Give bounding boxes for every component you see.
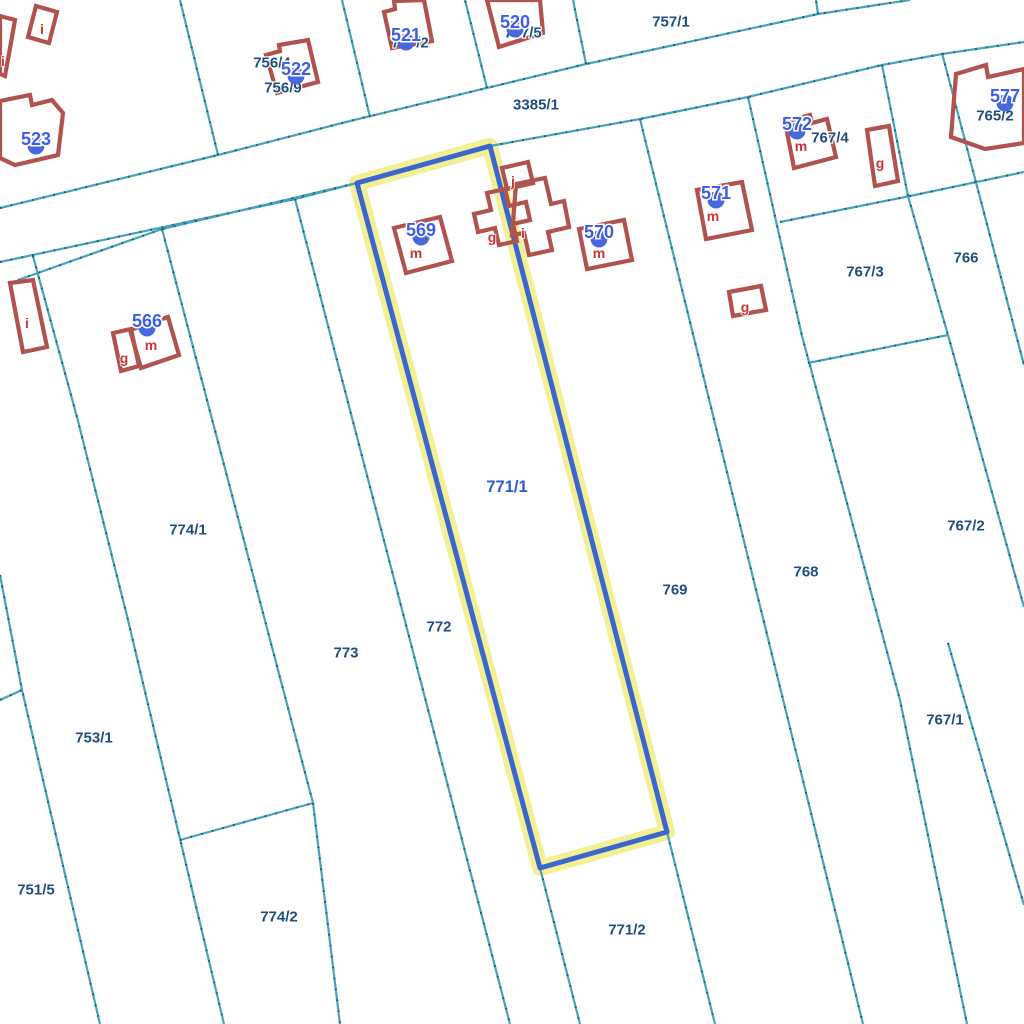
- parcel-label: 768: [793, 564, 818, 581]
- house-number-label: 566: [132, 311, 162, 331]
- building-letter: g: [876, 155, 885, 171]
- parcel-label: 757/1: [652, 14, 690, 31]
- parcel-label: 773: [333, 645, 358, 662]
- house-number-label: 572: [782, 114, 812, 134]
- boundary-line-upper-bound-1: [180, 0, 218, 155]
- boundary-line-strip-768-767: [748, 97, 967, 1024]
- parcel-label: 771/2: [608, 922, 646, 939]
- cadastral-map-canvas[interactable]: iiigmmgijmmgmg756/9756/4757/2757/5757/13…: [0, 0, 1024, 1024]
- building-letter: i: [521, 225, 525, 241]
- parcel-label: 751/5: [17, 882, 55, 899]
- boundary-speckle-road-top-edge: [0, 0, 910, 208]
- building-letter: m: [145, 337, 157, 353]
- parcel-label: 767/4: [811, 130, 849, 147]
- building-letter: g: [488, 229, 497, 245]
- house-number-label: 523: [21, 129, 51, 149]
- parcel-label: 767/1: [926, 712, 964, 729]
- boundary-line-upper-bound-2: [342, 0, 370, 117]
- building-letter: m: [707, 208, 719, 224]
- building-letter: j: [510, 173, 515, 189]
- selected-parcel-label: 771/1: [486, 478, 527, 496]
- boundary-line-cross-7674-7673: [780, 172, 1024, 222]
- house-number-label: 520: [500, 12, 530, 32]
- boundary-line-cross-774-1-774-2: [180, 803, 313, 840]
- building-letter: m: [410, 245, 422, 261]
- parcel-label: 772: [426, 619, 451, 636]
- cadastral-map-stage: iiigmmgijmmgmg756/9756/4757/2757/5757/13…: [0, 0, 1024, 1024]
- building-letter: i: [1, 53, 5, 69]
- boundary-line-strip-753-774: [33, 256, 224, 1024]
- parcel-label: 774/1: [169, 522, 207, 539]
- house-number-label: 522: [281, 59, 311, 79]
- building-letter: g: [120, 350, 129, 366]
- house-number-label: 569: [406, 220, 436, 240]
- parcel-label: 753/1: [75, 730, 113, 747]
- house-number-label: 570: [584, 222, 614, 242]
- building-letter: i: [25, 315, 29, 331]
- house-number-label: 571: [701, 183, 731, 203]
- boundary-line-strip-772-7712: [540, 868, 580, 1024]
- building-letter: i: [40, 21, 44, 37]
- parcel-label: 3385/1: [513, 97, 559, 114]
- building-letter: g: [741, 299, 750, 315]
- boundary-line-road-top-edge: [0, 0, 910, 208]
- parcel-label: 774/2: [260, 909, 298, 926]
- parcel-label: 769: [662, 582, 687, 599]
- house-number-label: 521: [391, 25, 421, 45]
- parcel-label: 767/2: [947, 518, 985, 535]
- boundary-speckle-strip-768-767: [748, 97, 967, 1024]
- boundary-line-strip-751-753: [0, 575, 100, 1024]
- building-letter: m: [795, 138, 807, 154]
- boundary-speckle-strip-753-774: [33, 256, 224, 1024]
- house-number-label: 577: [990, 86, 1020, 106]
- parcel-label: 766: [953, 250, 978, 267]
- parcel-label: 767/3: [846, 264, 884, 281]
- boundary-line-strip-7712-769: [667, 832, 715, 1024]
